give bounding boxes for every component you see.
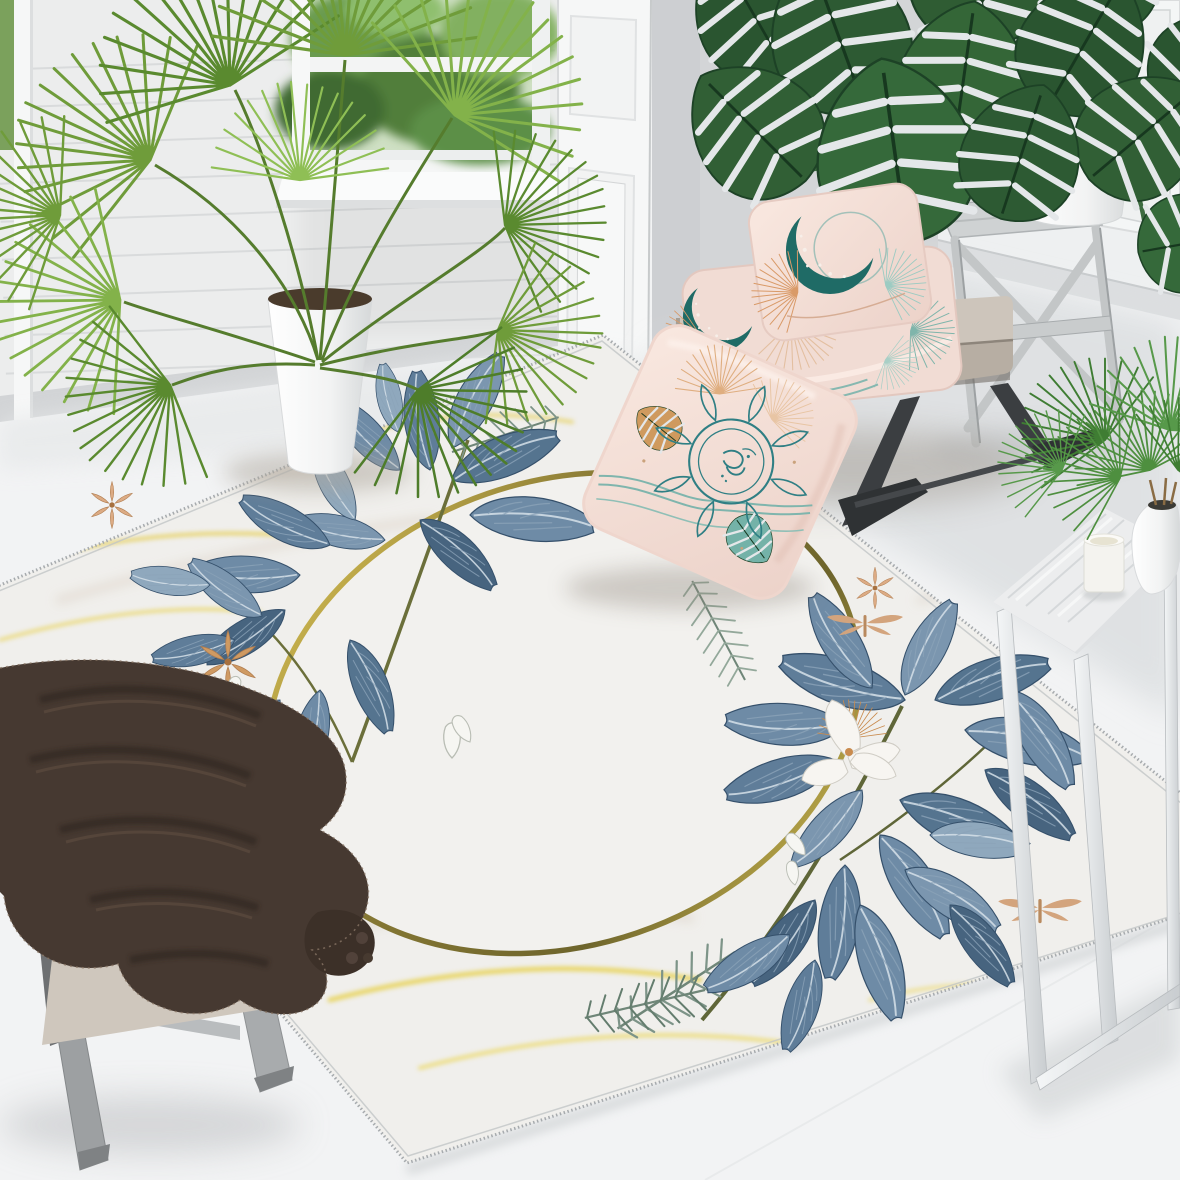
candle bbox=[1082, 534, 1126, 601]
pillow-top bbox=[730, 180, 938, 345]
room-photo bbox=[0, 0, 1180, 1180]
scene-illustration bbox=[0, 0, 1180, 1180]
